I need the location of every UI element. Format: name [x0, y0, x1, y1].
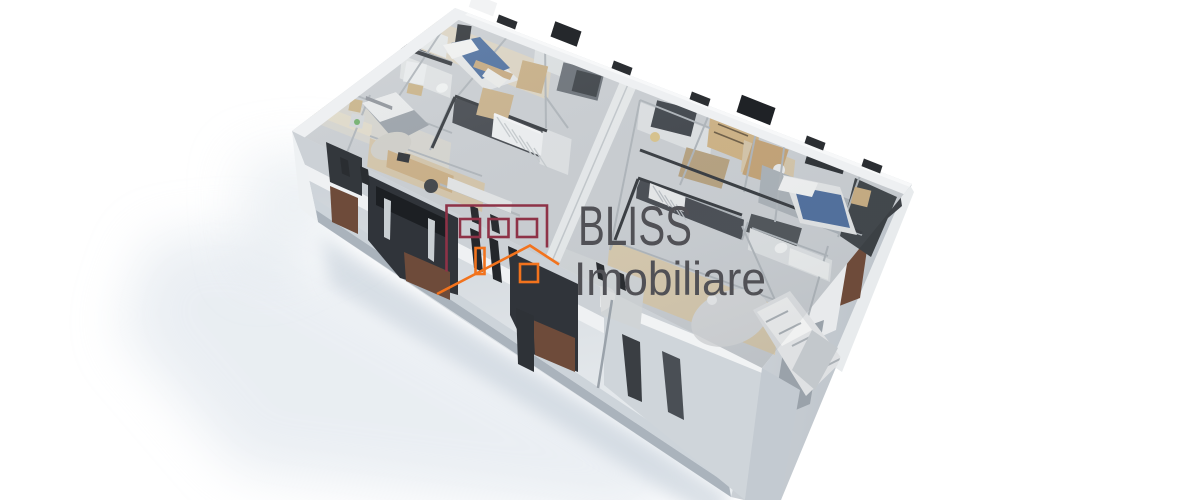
svg-text:Imobiliare: Imobiliare — [574, 252, 766, 305]
svg-text:BLISS: BLISS — [578, 194, 692, 257]
